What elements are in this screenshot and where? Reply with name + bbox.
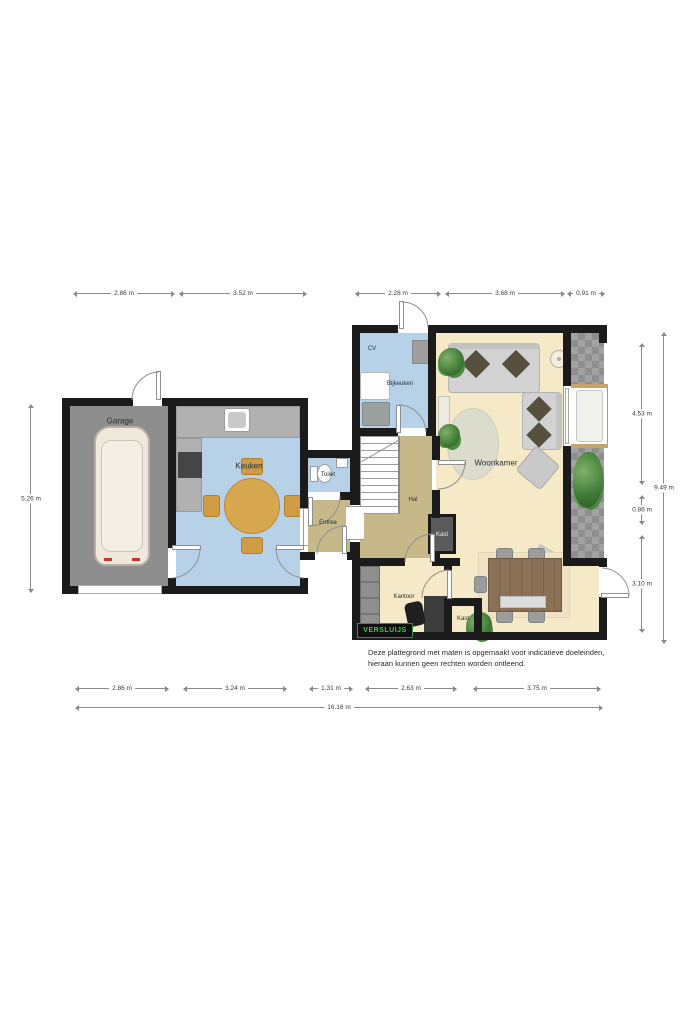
dining-chair-5 — [474, 576, 487, 593]
disclaimer-line-1: Deze plattegrond met maten is opgemaakt … — [368, 648, 608, 659]
keuken-entree-door-leaf — [276, 545, 304, 550]
wall — [428, 333, 436, 436]
dim-top-3: 2.28 m — [356, 293, 440, 294]
dim-label: 5.26 m — [19, 494, 43, 503]
dim-label: 2.63 m — [398, 685, 424, 692]
dim-label: 0.86 m — [630, 506, 654, 515]
dim-label: 3.52 m — [230, 290, 256, 297]
dim-label: 2.86 m — [109, 685, 135, 692]
car-taillight-left — [104, 558, 112, 561]
wall — [428, 325, 607, 333]
dim-right-2: 0.86 m — [641, 496, 642, 524]
kitchen-stove — [178, 452, 202, 478]
bay-window-sill-bottom — [571, 444, 608, 448]
wall — [168, 406, 176, 548]
toilet-door-leaf — [308, 497, 313, 526]
dim-bottom-3: 1.31 m — [310, 688, 352, 689]
room-label-garage: Garage — [107, 417, 134, 426]
room-label-toilet: Toilet — [321, 472, 335, 478]
dim-right-1: 4.53 m — [641, 344, 642, 484]
garage-keuken-door-leaf — [172, 545, 201, 550]
wall — [444, 558, 452, 570]
wall — [360, 428, 398, 436]
dim-top-1: 2.86 m — [74, 293, 174, 294]
kitchen-chair-west — [203, 495, 220, 517]
room-label-bijkeuken: Bijkeuken — [387, 381, 413, 387]
room-label-hal: Hal — [408, 497, 417, 503]
hal-woonkamer-door-leaf — [438, 460, 466, 465]
room-label-keuken: Keuken — [235, 462, 262, 471]
room-label-kast-hal: Kast — [436, 532, 448, 538]
wall — [168, 578, 176, 586]
dim-bottom-2: 3.24 m — [184, 688, 286, 689]
wall — [444, 606, 452, 632]
dim-right-3: 3.10 m — [641, 536, 642, 632]
wall — [432, 490, 440, 518]
dim-top-2: 3.52 m — [180, 293, 306, 294]
dim-label: 1.31 m — [318, 685, 344, 692]
staircase — [360, 436, 400, 514]
entree-front-door-leaf — [342, 526, 347, 554]
dim-label: 16.16 m — [324, 704, 354, 711]
disclaimer-text: Deze plattegrond met maten is opgemaakt … — [368, 648, 608, 669]
kitchen-sink-basin — [228, 412, 246, 428]
car-roof — [101, 440, 143, 552]
wall — [300, 578, 308, 594]
room-label-entree: Entree — [319, 520, 337, 526]
wall — [474, 598, 482, 632]
room-label-cv: CV — [368, 346, 376, 352]
dim-label: 3.75 m — [524, 685, 550, 692]
garage-door-panel — [78, 585, 162, 594]
wall — [563, 446, 571, 558]
dim-top-5: 0.91 m — [568, 293, 604, 294]
dim-label: 0.91 m — [573, 290, 599, 297]
dim-label: 2.28 m — [385, 290, 411, 297]
wall — [432, 436, 440, 460]
entree-window — [300, 508, 308, 546]
wall — [599, 333, 607, 343]
dim-bottom-5: 3.75 m — [474, 688, 600, 689]
front-door-leaf — [399, 301, 404, 329]
bay-window-sill-top — [571, 384, 608, 388]
toilet-sink — [336, 458, 348, 468]
bay-window-glazing — [565, 388, 569, 444]
disclaimer-line-2: hieraan kunnen geen rechten worden ontle… — [368, 659, 608, 670]
dim-top-4: 3.68 m — [446, 293, 564, 294]
kitchen-chair-east — [284, 495, 301, 517]
dim-label: 9.49 m — [652, 484, 676, 493]
dining-bench — [500, 596, 546, 608]
entree-window-glazing — [303, 508, 304, 546]
dim-left: 5.26 m — [30, 405, 31, 592]
floorplan-canvas: Garage Keuken Toilet Entree Hal CV Bijke… — [0, 0, 683, 1024]
dim-label: 3.24 m — [222, 685, 248, 692]
dim-label: 4.53 m — [630, 410, 654, 419]
kantoor-woonkamer-door-leaf — [447, 570, 452, 599]
room-label-kast-kantoor: Kast — [457, 616, 469, 622]
wall — [352, 325, 360, 450]
ceiling-lamp-center — [557, 357, 561, 361]
wall — [162, 398, 308, 406]
bijkeuken-door-leaf — [396, 405, 401, 433]
dim-label: 2.86 m — [111, 290, 137, 297]
garage-exterior-door-leaf — [156, 371, 161, 400]
dim-right-total: 9.49 m — [663, 333, 664, 643]
versluijs-logo: VERSLUIJS — [357, 623, 413, 638]
wall — [563, 333, 571, 386]
wall — [426, 428, 436, 436]
room-label-woonkamer: Woonkamer — [475, 459, 518, 468]
wall — [599, 597, 607, 640]
dryer — [362, 402, 390, 426]
bay-window-seat — [576, 390, 603, 442]
hal-kantoor-door-leaf — [430, 534, 435, 562]
wall — [62, 398, 133, 406]
entree-hal-passage — [346, 506, 364, 540]
car-taillight-right — [132, 558, 140, 561]
terrace-door-leaf — [601, 593, 629, 598]
wall — [300, 552, 315, 560]
kitchen-table — [224, 478, 280, 534]
office-cabinet — [360, 566, 380, 628]
room-label-kantoor: Kantoor — [393, 594, 414, 600]
dim-bottom-total: 16.16 m — [76, 707, 602, 708]
wall — [62, 398, 70, 594]
washer — [360, 372, 390, 400]
wall — [350, 450, 360, 505]
dim-label: 3.10 m — [630, 580, 654, 589]
dim-bottom-1: 2.86 m — [76, 688, 168, 689]
dim-bottom-4: 2.63 m — [366, 688, 456, 689]
kitchen-chair-south — [241, 537, 263, 554]
wall — [599, 558, 607, 567]
dim-label: 3.68 m — [492, 290, 518, 297]
wall — [352, 558, 405, 566]
